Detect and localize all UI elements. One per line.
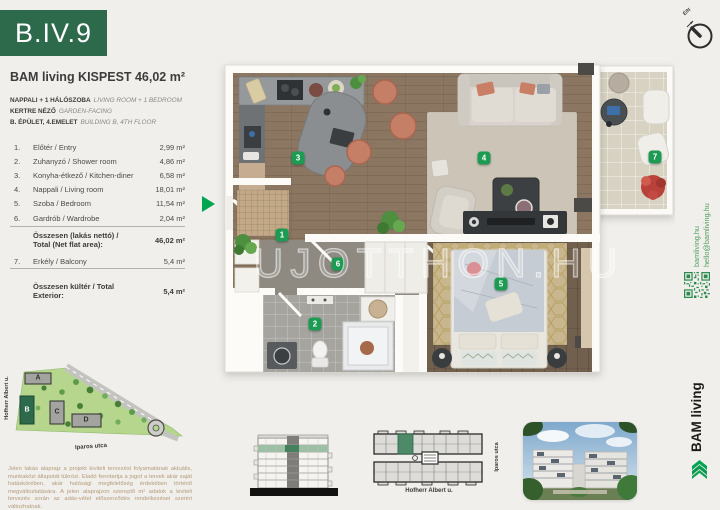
feature-hu: KERTRE NÉZŐ [10,108,56,115]
room-area: 11,54 m² [156,199,185,208]
net-total-value: 46,02 m² [122,236,185,245]
floor-key-plan-graphic [370,428,492,486]
building-elevation-graphic [250,430,338,500]
room-no: 7. [10,257,33,266]
exterior-total-row: Összesen kültér / Total Exterior: 5,4 m² [10,278,185,300]
room-name: Előtér / Entry [33,143,160,152]
feature-list: NAPPALI + 1 HÁLÓSZOBALIVING ROOM + 1 BED… [10,96,212,128]
floorplan-sheet: B.IV.9 BAM living KISPEST 46,02 m² NAPPA… [0,0,720,510]
table-row: 6.Gardrób / Wardrobe2,04 m² [10,211,185,225]
site-building-c-label: C [54,409,59,416]
qr-code [684,272,710,298]
table-row: 2.Zuhanyzó / Shower room4,86 m² [10,154,185,168]
disclaimer-text: Jelen lakás alaprajz a projekt kiviteli … [8,466,192,510]
keyplan-street-right-label: Iparos utca [494,433,500,481]
room-no: 5. [10,199,33,208]
room-no: 1. [10,143,33,152]
room-badge-balcony: 7 [649,151,662,164]
room-name: Konyha-étkező / Kitchen-diner [33,171,160,180]
table-row: 5.Szoba / Bedroom11,54 m² [10,197,185,211]
project-render-photo [523,422,637,500]
feature-line: NAPPALI + 1 HÁLÓSZOBALIVING ROOM + 1 BED… [10,96,212,107]
table-row: 7. Erkély / Balcony 5,4 m² [10,254,185,269]
room-badge-entry: 1 [276,229,289,242]
room-badge-bedroom: 5 [495,278,508,291]
room-area: 2,99 m² [160,143,185,152]
table-row: 4.Nappali / Living room18,01 m² [10,183,185,197]
unit-code: B.IV.9 [15,18,92,49]
room-badge-kitchen: 3 [292,152,305,165]
net-total-label: Összesen (lakás nettó) / Total (Net flat… [10,231,122,249]
exterior-total-value: 5,4 m² [140,287,185,296]
room-name: Gardrób / Wardrobe [33,214,160,223]
room-table: 1.Előtér / Entry2,99 m² 2.Zuhanyzó / Sho… [10,140,185,225]
room-no: 4. [10,185,33,194]
room-name: Nappali / Living room [33,185,155,194]
feature-en: LIVING ROOM + 1 BEDROOM [94,97,182,104]
unit-code-badge: B.IV.9 [0,10,107,56]
total-area: 46,02 m² [135,70,185,84]
exterior-table: 7. Erkély / Balcony 5,4 m² [10,254,185,269]
brand-chevron-icon [691,459,708,479]
room-no: 6. [10,214,33,223]
exterior-total-label: Összesen kültér / Total Exterior: [10,282,140,300]
compass-icon [683,16,715,50]
room-badge-shower: 2 [309,318,322,331]
website-link[interactable]: bamliving.hu [692,161,702,267]
room-name: Erkély / Balcony [33,257,164,266]
brand-logo: BAM living [689,366,704,452]
room-area: 6,58 m² [160,171,185,180]
feature-line: KERTRE NÉZŐGARDEN-FACING [10,107,212,118]
net-total-row: Összesen (lakás nettó) / Total (Net flat… [10,226,185,249]
room-no: 2. [10,157,33,166]
project-title: BAM living KISPEST [10,70,132,84]
feature-line: B. ÉPÜLET, 4.EMELETBUILDING B, 4TH FLOOR [10,118,212,129]
room-name: Szoba / Bedroom [33,199,156,208]
room-area: 5,4 m² [164,257,185,266]
room-area: 4,86 m² [160,157,185,166]
site-building-b-label: B [24,407,29,414]
project-render-graphic [523,422,637,500]
email-link[interactable]: hello@bamliving.hu [702,161,712,267]
feature-en: BUILDING B, 4TH FLOOR [80,119,156,126]
room-name: Zuhanyzó / Shower room [33,157,160,166]
table-row: 3.Konyha-étkező / Kitchen-diner6,58 m² [10,168,185,182]
feature-en: GARDEN-FACING [59,108,112,115]
site-street-left-label: Hofherr Albert u. [4,366,10,430]
contact-links: bamliving.hu hello@bamliving.hu [692,161,711,267]
room-no: 3. [10,171,33,180]
room-area: 18,01 m² [155,185,185,194]
room-badge-living: 4 [478,152,491,165]
room-area: 2,04 m² [160,214,185,223]
entry-direction-arrow [202,196,215,212]
room-badge-wardrobe: 6 [332,258,345,271]
feature-hu: B. ÉPÜLET, 4.EMELET [10,119,77,126]
feature-hu: NAPPALI + 1 HÁLÓSZOBA [10,97,91,104]
table-row: 1.Előtér / Entry2,99 m² [10,140,185,154]
keyplan-street-bottom-label: Hofherr Albert u. [366,488,492,494]
title-row: BAM living KISPEST 46,02 m² [10,70,185,84]
site-building-a-label: A [35,375,40,382]
site-building-d-label: D [83,417,88,424]
